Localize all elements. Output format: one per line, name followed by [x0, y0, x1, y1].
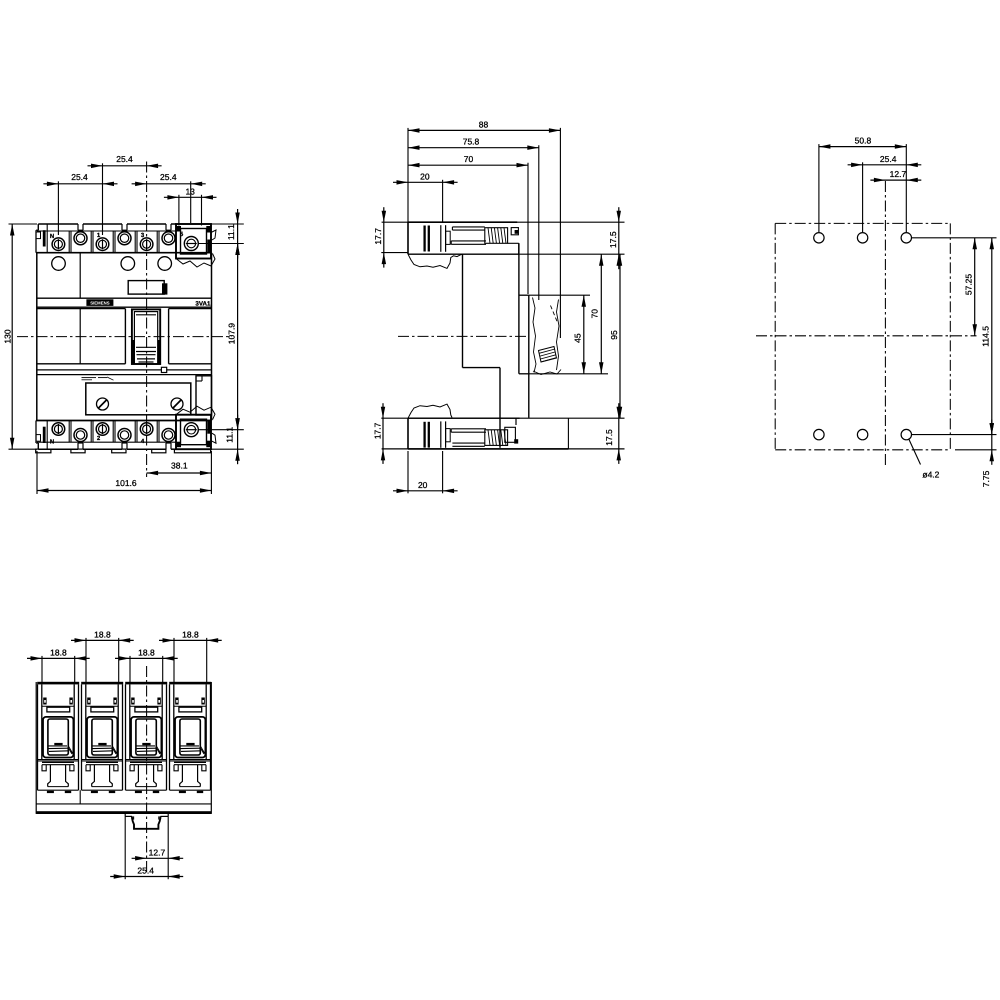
svg-text:25.4: 25.4	[160, 172, 177, 182]
svg-text:130: 130	[3, 329, 13, 343]
svg-text:18.8: 18.8	[138, 647, 155, 657]
svg-text:17.7: 17.7	[372, 422, 382, 439]
svg-text:114.5: 114.5	[981, 326, 991, 347]
svg-text:SIEMENS: SIEMENS	[90, 301, 109, 306]
svg-text:38.1: 38.1	[171, 460, 188, 470]
svg-text:25.4: 25.4	[880, 154, 897, 164]
svg-text:25.4: 25.4	[71, 172, 88, 182]
svg-text:45: 45	[572, 333, 582, 343]
svg-text:18.8: 18.8	[182, 629, 199, 639]
svg-text:18.8: 18.8	[94, 629, 111, 639]
svg-text:N: N	[50, 439, 54, 446]
svg-text:50.8: 50.8	[855, 136, 872, 146]
svg-text:12.7: 12.7	[149, 847, 166, 857]
svg-text:12.7: 12.7	[890, 169, 907, 179]
svg-text:95: 95	[609, 330, 619, 340]
svg-text:17.7: 17.7	[373, 228, 383, 245]
svg-text:17.5: 17.5	[604, 429, 614, 446]
svg-text:20: 20	[418, 480, 428, 490]
svg-text:3VA1: 3VA1	[195, 300, 211, 307]
svg-text:25.4: 25.4	[116, 154, 133, 164]
svg-text:7.75: 7.75	[981, 470, 991, 487]
svg-text:11.1: 11.1	[226, 224, 236, 240]
svg-text:70: 70	[590, 309, 600, 319]
svg-text:101.6: 101.6	[115, 478, 137, 488]
svg-text:17.5: 17.5	[608, 231, 618, 248]
svg-text:18.8: 18.8	[50, 647, 67, 657]
svg-text:70: 70	[464, 154, 474, 164]
svg-text:13: 13	[185, 187, 195, 197]
svg-text:N: N	[50, 233, 54, 240]
svg-text:57.25: 57.25	[963, 274, 973, 296]
svg-text:75.8: 75.8	[463, 137, 480, 147]
svg-text:88: 88	[479, 119, 489, 129]
svg-text:107.9: 107.9	[226, 323, 236, 345]
svg-text:20: 20	[420, 171, 430, 181]
svg-text:11.1: 11.1	[225, 427, 235, 443]
svg-text:25.4: 25.4	[137, 866, 154, 876]
svg-text:ø4.2: ø4.2	[922, 470, 939, 480]
